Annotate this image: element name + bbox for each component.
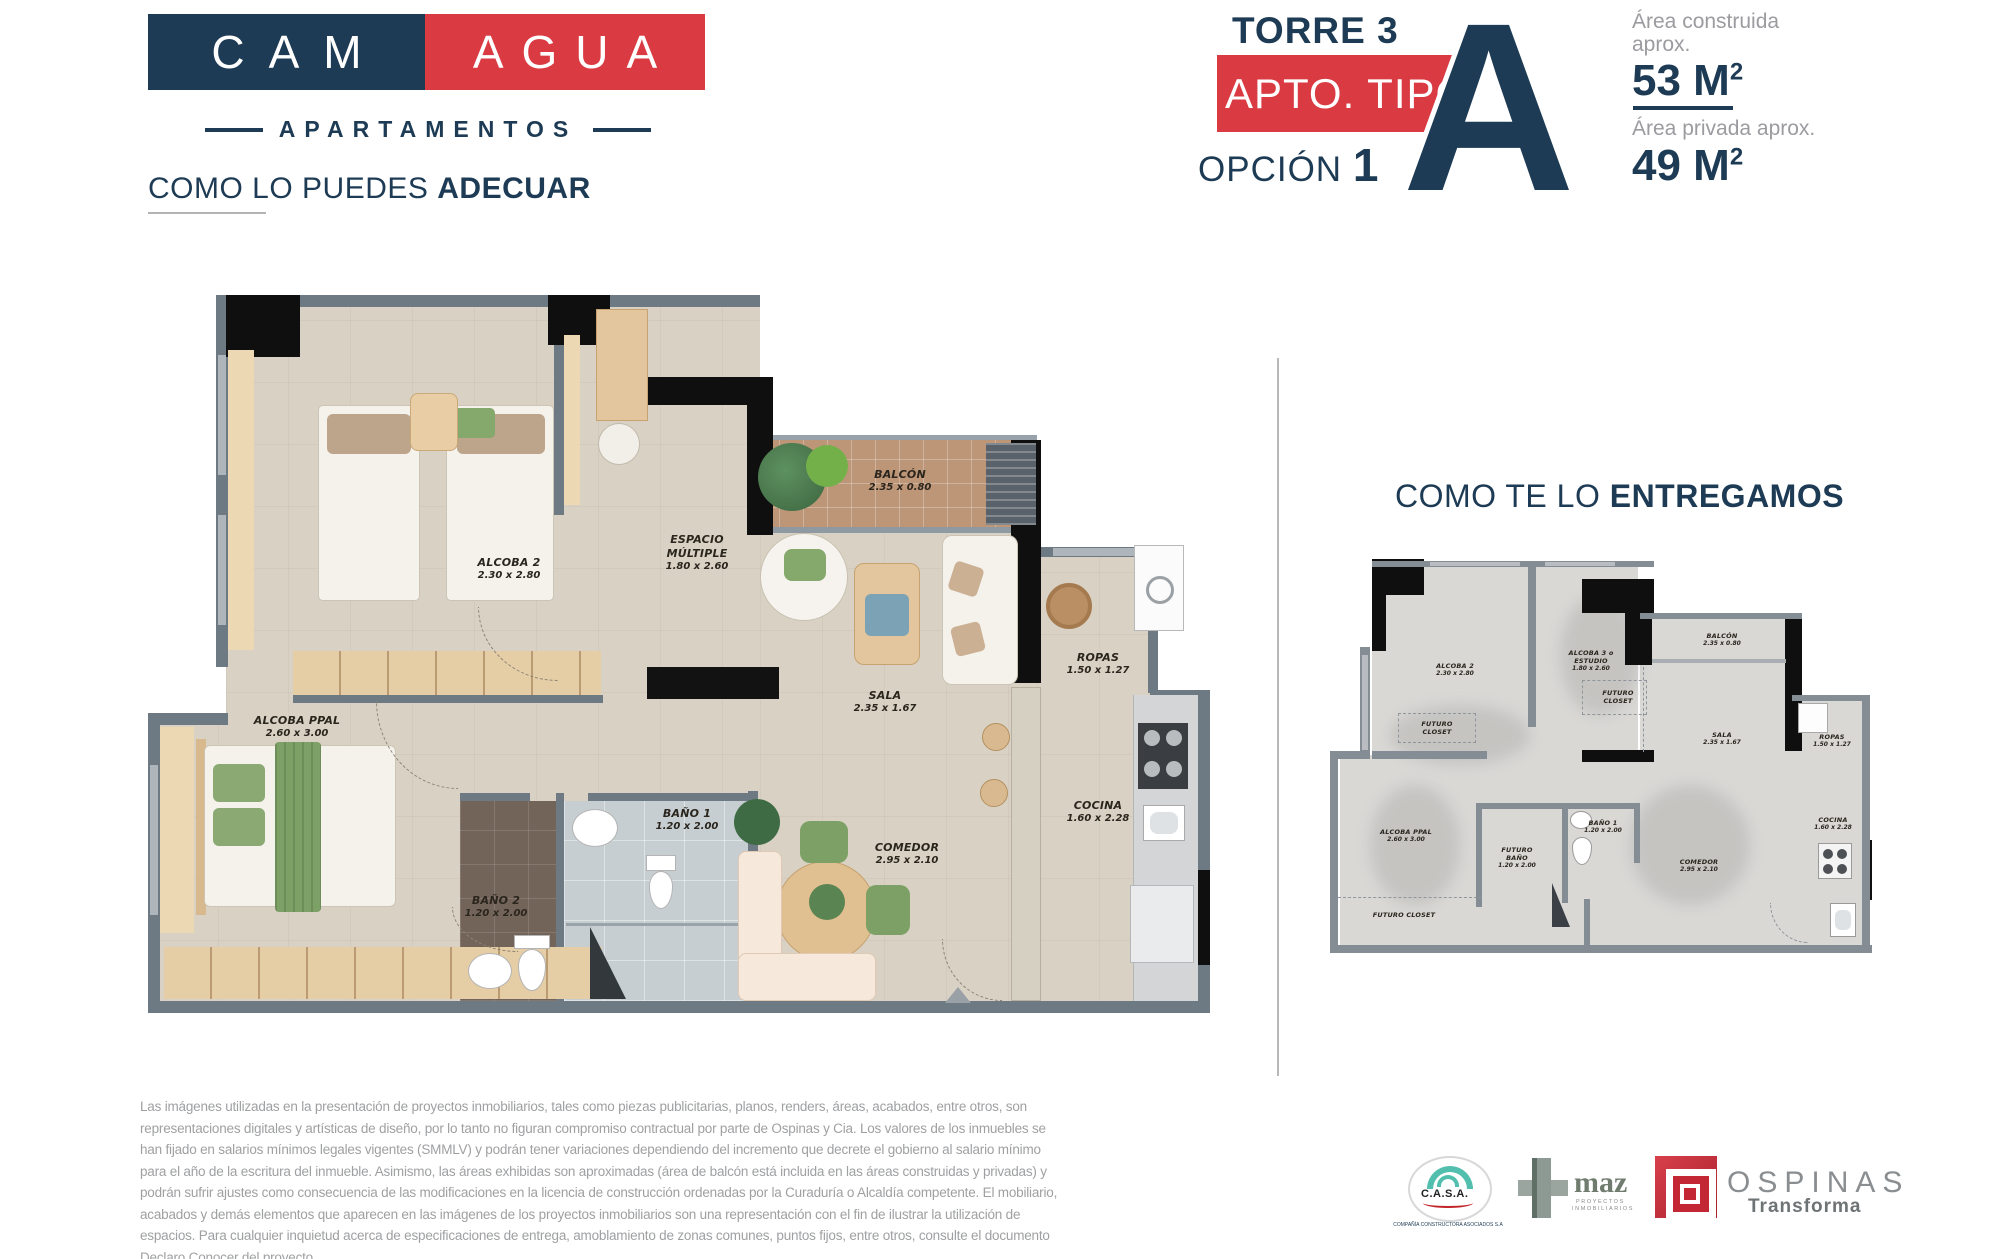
dining-chair [800, 821, 848, 863]
title-entregamos-regular: COMO TE LO [1395, 478, 1600, 514]
floorplan-entrega: ALCOBA 22.30 x 2.80 ALCOBA 3 o ESTUDIO1.… [1330, 555, 1905, 1005]
room-name: ALCOBA 3 o ESTUDIO [1568, 649, 1614, 665]
tv-console [647, 667, 779, 699]
wall [148, 713, 228, 725]
subtitle-dash-left [205, 128, 263, 132]
room-name: ALCOBA 2 [478, 556, 541, 570]
ppal-ledge [160, 727, 194, 933]
washer [1134, 545, 1184, 631]
room-dims: 2.35 x 1.67 [1703, 739, 1741, 747]
dining-table [776, 861, 876, 961]
wall-black [1372, 559, 1386, 651]
room-label-comedor: COMEDOR2.95 x 2.10 [875, 841, 939, 867]
room-label-sala: SALA2.35 x 1.67 [1703, 731, 1741, 747]
room-dims: 2.60 x 3.00 [254, 728, 341, 741]
balcony-window [755, 527, 1015, 533]
logo-red-box: AGUA [425, 14, 705, 90]
wall [588, 793, 758, 801]
room-name: BAÑO 1 [656, 807, 719, 821]
bathroom1-sink [572, 809, 618, 847]
window [1053, 548, 1138, 556]
room-label-futuro-closet-1: FUTURO CLOSET [1417, 720, 1457, 736]
burner [1823, 849, 1833, 859]
sofa [942, 535, 1018, 685]
wall-black [1198, 870, 1210, 965]
logo-subtitle-row: APARTAMENTOS [148, 116, 708, 143]
room-dims: 2.95 x 2.10 [875, 855, 939, 868]
room-name: ALCOBA PPAL [254, 714, 341, 728]
unit-type-letter: A [1402, 0, 1575, 227]
built-area-number: 53 M [1632, 56, 1730, 105]
wall [1584, 899, 1590, 949]
room-label-ropas: ROPAS1.50 x 1.27 [1813, 733, 1851, 749]
twin-bed-1 [318, 405, 420, 601]
option-label: OPCIÓN [1198, 150, 1342, 189]
dining-chair [866, 885, 910, 935]
shading [1630, 785, 1750, 905]
green-pillow [213, 808, 265, 846]
built-area-label-1: Área construida [1632, 10, 1779, 34]
kitchen-sink [1830, 903, 1856, 937]
wall [1330, 751, 1338, 951]
main-bed [204, 745, 396, 907]
room-name: COCINA [1067, 799, 1130, 813]
stool [980, 779, 1008, 807]
stove [1818, 843, 1852, 879]
pillow [327, 414, 411, 454]
wall [460, 793, 530, 801]
room-name: ROPAS [1813, 733, 1851, 741]
casa-red-swoosh-icon [1423, 1198, 1473, 1208]
sink-basin [1835, 910, 1851, 930]
wardrobe-strip [564, 335, 580, 505]
dashed-wall [1643, 667, 1644, 752]
maz-logo-icon [1518, 1158, 1568, 1218]
room-dims: 2.35 x 0.80 [869, 482, 932, 495]
area-divider-line [1633, 106, 1733, 110]
ospinas-inner-square [1680, 1184, 1700, 1204]
room-name: BALCÓN [1703, 632, 1741, 640]
built-area-value: 53 M2 [1632, 56, 1743, 106]
maz-bar-shadow [1532, 1158, 1537, 1218]
futuro-closet-line [1338, 897, 1482, 898]
wall [1634, 803, 1640, 863]
blue-cushion [865, 594, 909, 636]
maz-tagline-1: PROYECTOS [1576, 1199, 1625, 1205]
green-throw [275, 742, 321, 912]
room-name: COCINA [1814, 816, 1852, 824]
room-label-balcon: BALCÓN2.35 x 0.80 [1703, 632, 1741, 648]
ospinas-logo-icon [1655, 1156, 1717, 1218]
wall-black [1625, 579, 1652, 665]
wall [1792, 695, 1868, 701]
room-name: SALA [854, 689, 917, 703]
room-label-futuro-bano: FUTURO BAÑO1.20 x 2.00 [1497, 846, 1537, 870]
room-label-alcoba2: ALCOBA 22.30 x 2.80 [1436, 662, 1474, 678]
kitchen-island [1011, 687, 1041, 1001]
ospinas-tagline: Transforma [1748, 1196, 1861, 1218]
room-label-bano1: BAÑO 11.20 x 2.00 [1584, 819, 1622, 835]
window [1545, 562, 1615, 566]
room-dims: 2.35 x 1.67 [854, 703, 917, 716]
room-label-alcoba3-estudio: ALCOBA 3 o ESTUDIO1.80 x 2.60 [1568, 649, 1614, 673]
logo-subtitle: APARTAMENTOS [279, 116, 577, 143]
room-name: COMEDOR [1680, 858, 1719, 866]
room-dims: 2.35 x 0.80 [1703, 640, 1741, 648]
burner [1166, 761, 1182, 777]
option-number: 1 [1353, 139, 1380, 191]
balcony-rail [1652, 659, 1786, 663]
room-label-alcoba2: ALCOBA 22.30 x 2.80 [478, 556, 541, 582]
ospinas-name: OSPINAS [1727, 1166, 1909, 1200]
room-label-futuro-closet-2: FUTURO CLOSET [1598, 689, 1638, 705]
room-dims: 1.20 x 2.00 [1497, 862, 1537, 870]
room-name: ALCOBA PPAL [1380, 828, 1432, 836]
room-name: BALCÓN [869, 468, 932, 482]
woven-basket [1046, 583, 1092, 629]
room-label-alcoba-ppal: ALCOBA PPAL2.60 x 3.00 [254, 714, 341, 740]
room-label-espacio-multiple: ESPACIO MÚLTIPLE1.80 x 2.60 [654, 533, 740, 573]
balcony-plant-2 [806, 445, 848, 487]
desk [596, 309, 648, 421]
logo-text-cam: CAM [187, 25, 385, 79]
wall [1640, 613, 1802, 619]
room-label-bano2: BAÑO 21.20 x 2.00 [465, 894, 528, 920]
wall [148, 1001, 1210, 1013]
washer [1798, 703, 1828, 733]
room-name: ROPAS [1067, 651, 1130, 665]
room-label-cocina: COCINA1.60 x 2.28 [1814, 816, 1852, 832]
wall [1562, 803, 1568, 903]
private-area-label: Área privada aprox. [1632, 117, 1815, 141]
room-name: ESPACIO MÚLTIPLE [654, 533, 740, 561]
room-label-balcon: BALCÓN2.35 x 0.80 [869, 468, 932, 494]
burner [1837, 849, 1847, 859]
brochure-page: CAM AGUA APARTAMENTOS TORRE 3 APTO. TIPO… [0, 0, 2000, 1259]
title-entregamos-bold: ENTREGAMOS [1610, 478, 1844, 514]
private-area-sup: 2 [1730, 143, 1743, 170]
room-name: FUTURO CLOSET [1373, 911, 1436, 919]
room-label-comedor: COMEDOR2.95 x 2.10 [1680, 858, 1719, 874]
private-area-number: 49 M [1632, 141, 1730, 190]
room-name: SALA [1703, 731, 1741, 739]
window [150, 765, 158, 915]
section-underline [148, 212, 266, 214]
wall [1862, 695, 1870, 775]
plant [734, 799, 780, 845]
room-dims: 1.60 x 2.28 [1067, 813, 1130, 826]
section-title-adecuar: COMO LO PUEDES ADECUAR [148, 172, 591, 206]
maz-tagline-2: INMOBILIARIOS [1572, 1206, 1634, 1212]
room-name: FUTURO CLOSET [1598, 689, 1638, 705]
burner [1144, 761, 1160, 777]
room-name: COMEDOR [875, 841, 939, 855]
room-dims: 1.20 x 2.00 [656, 821, 719, 834]
window [1430, 562, 1520, 566]
room-dims: 2.30 x 2.80 [478, 570, 541, 583]
subtitle-dash-right [593, 128, 651, 132]
maz-name: maz [1574, 1166, 1627, 1200]
wall [1528, 567, 1536, 727]
pillow [950, 621, 986, 657]
burner [1144, 730, 1160, 746]
window [218, 515, 226, 625]
washer-door [1146, 576, 1174, 604]
casa-tagline: COMPAÑÍA CONSTRUCTORA ASOCIADOS S.A [1393, 1222, 1503, 1228]
stove [1138, 723, 1188, 789]
bench-horizontal [738, 953, 876, 1001]
stool [982, 723, 1010, 751]
room-label-futuro-closet-3: FUTURO CLOSET [1373, 911, 1436, 919]
room-label-alcoba-ppal: ALCOBA PPAL2.60 x 3.00 [1380, 828, 1432, 844]
room-label-cocina: COCINA1.60 x 2.28 [1067, 799, 1130, 825]
burner [1837, 864, 1847, 874]
maz-bar-vertical [1537, 1158, 1551, 1218]
toilet-tank [646, 855, 676, 871]
section-title-entregamos: COMO TE LO ENTREGAMOS [1395, 478, 1844, 515]
tower-label: TORRE 3 [1232, 10, 1399, 52]
toilet-tank [514, 935, 550, 949]
nightstand [410, 393, 458, 451]
green-pillow [784, 549, 826, 581]
centerpiece-plant [809, 884, 845, 920]
shower-glass [566, 923, 746, 926]
room-label-ropas: ROPAS1.50 x 1.27 [1067, 651, 1130, 677]
title-adecuar-bold: ADECUAR [437, 172, 591, 205]
room-label-bano1: BAÑO 11.20 x 2.00 [656, 807, 719, 833]
alcoba2-side-ledge [228, 350, 254, 650]
built-area-label-2: aprox. [1632, 33, 1690, 57]
room-dims: 1.20 x 2.00 [465, 908, 528, 921]
room-dims: 1.20 x 2.00 [1584, 827, 1622, 835]
room-dims: 1.50 x 1.27 [1067, 665, 1130, 678]
wall [1372, 751, 1487, 759]
legal-disclaimer: Las imágenes utilizadas en la presentaci… [140, 1096, 1070, 1259]
sink-basin [1150, 812, 1178, 834]
wall [226, 295, 760, 307]
room-dims: 1.60 x 2.28 [1814, 824, 1852, 832]
casa-logo-icon: C.A.S.A. [1408, 1156, 1492, 1222]
room-dims: 2.95 x 2.10 [1680, 866, 1719, 874]
option-row: OPCIÓN 1 [1198, 138, 1379, 192]
room-label-sala: SALA2.35 x 1.67 [854, 689, 917, 715]
bathroom2-sink [468, 953, 512, 989]
room-dims: 1.80 x 2.60 [1568, 665, 1614, 673]
vertical-divider [1277, 358, 1279, 1076]
logo-text-agua: AGUA [455, 25, 675, 79]
floorplan-adecuar: ALCOBA 22.30 x 2.80 ESPACIO MÚLTIPLE1.80… [148, 295, 1210, 1015]
ac-unit [986, 443, 1036, 525]
kitchen-sink [1143, 805, 1185, 841]
ospinas-inner-frame [1666, 1169, 1716, 1219]
room-name: FUTURO CLOSET [1417, 720, 1457, 736]
fridge [1130, 885, 1194, 963]
window [1362, 655, 1368, 750]
room-name: FUTURO BAÑO [1497, 846, 1537, 862]
wall [1562, 803, 1640, 809]
room-dims: 2.30 x 2.80 [1436, 670, 1474, 678]
wall [1330, 945, 1872, 953]
room-dims: 2.60 x 3.00 [1380, 836, 1432, 844]
pillow [947, 560, 985, 598]
green-pillow [213, 764, 265, 802]
window [218, 355, 226, 475]
balcony-rail [755, 435, 1037, 440]
wall-black [226, 295, 300, 357]
private-area-value: 49 M2 [1632, 141, 1743, 191]
burner [1166, 730, 1182, 746]
burner [1823, 864, 1833, 874]
title-adecuar-regular: COMO LO PUEDES [148, 172, 428, 205]
logo-navy-box: CAM [148, 14, 425, 90]
room-name: ALCOBA 2 [1436, 662, 1474, 670]
desk-chair [598, 423, 640, 465]
room-name: BAÑO 2 [465, 894, 528, 908]
room-dims: 1.50 x 1.27 [1813, 741, 1851, 749]
room-name: BAÑO 1 [1584, 819, 1622, 827]
wall [1482, 803, 1568, 809]
shading [1370, 785, 1460, 905]
coffee-table [854, 563, 920, 665]
built-area-sup: 2 [1730, 58, 1743, 85]
wall [1476, 803, 1482, 907]
room-dims: 1.80 x 2.60 [654, 561, 740, 574]
entry-arrow-icon [945, 987, 971, 1003]
wall [1862, 775, 1870, 949]
